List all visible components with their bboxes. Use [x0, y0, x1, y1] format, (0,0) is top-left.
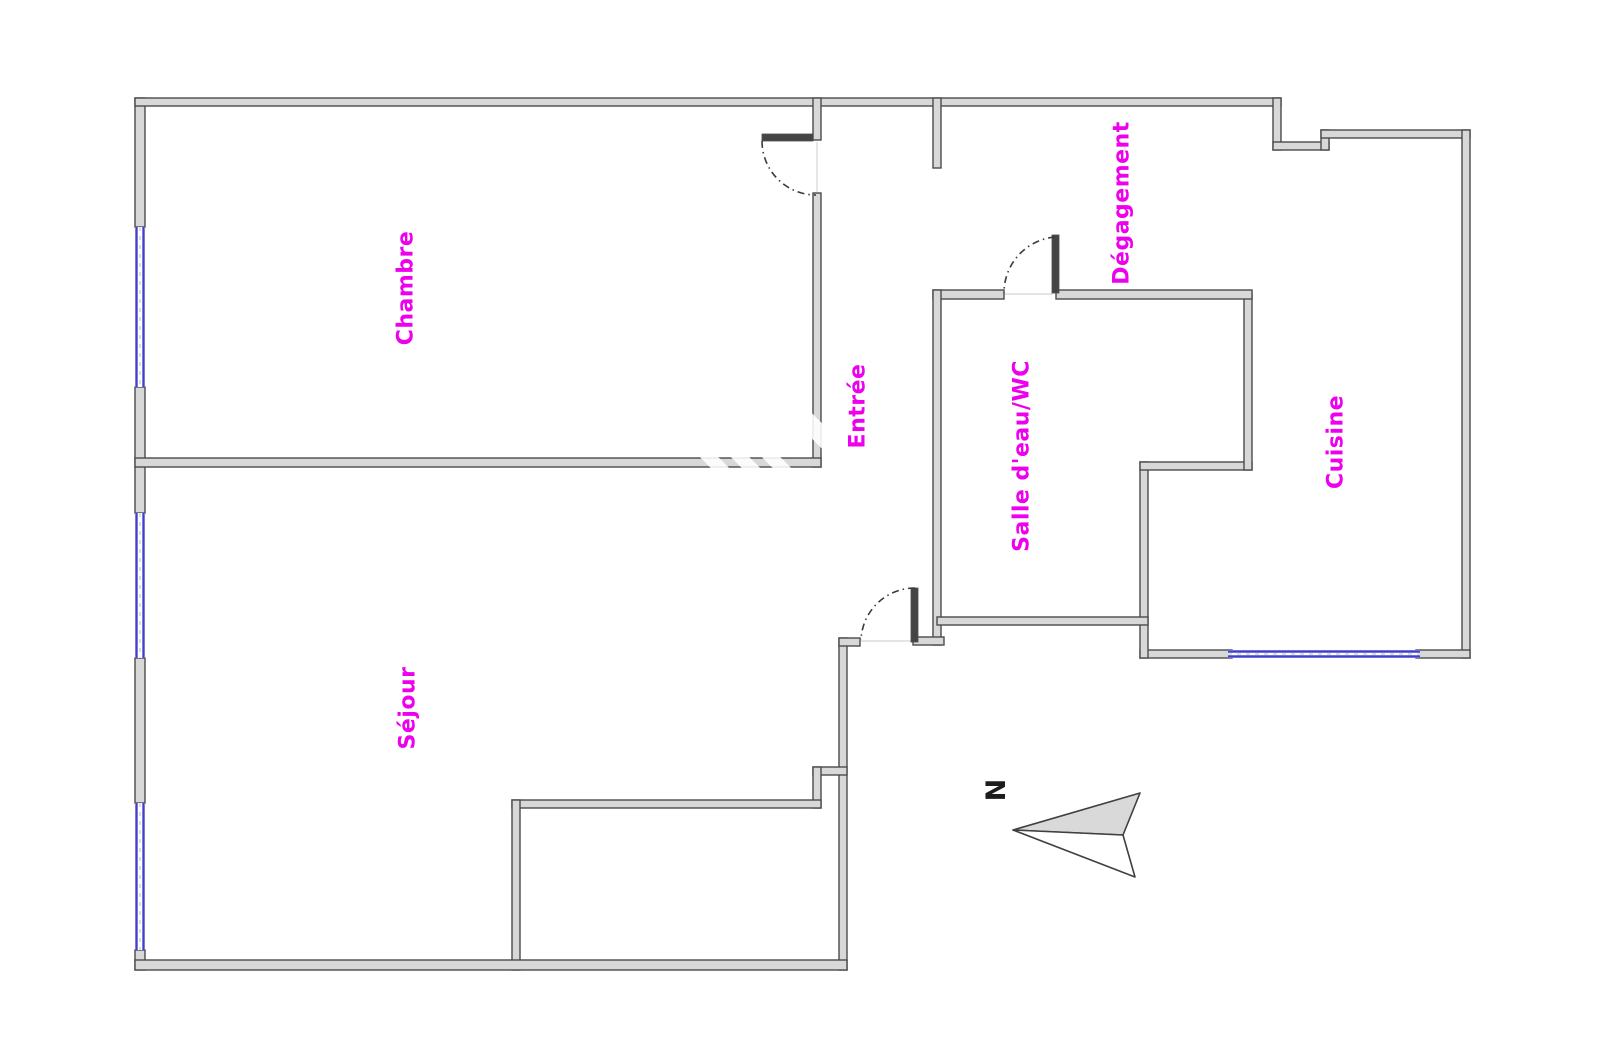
wall-segment [1244, 293, 1252, 470]
floor-plan-drawing [0, 0, 1600, 1064]
wall-segment [937, 617, 1148, 625]
wall-segment [839, 638, 847, 970]
wall-segment [1140, 462, 1148, 658]
wall-segment [1416, 650, 1470, 658]
floor-plan-page: Chambre Entrée Dégagement Salle d'eau/WC… [0, 0, 1600, 1064]
north-arrow-lower [1013, 830, 1135, 877]
room-label-cuisine: Cuisine [1324, 395, 1349, 489]
wall-segment [839, 638, 860, 646]
room-label-sejour: Séjour [396, 667, 421, 750]
wall-segment [813, 98, 821, 140]
north-letter: N [979, 779, 1010, 802]
room-label-entree: Entrée [846, 364, 871, 449]
door-swing-arc [1004, 237, 1055, 293]
door-swing-arc [762, 141, 816, 195]
wall-segment [512, 800, 520, 970]
wall-segment [933, 290, 941, 645]
wall-segment [1462, 130, 1470, 658]
wall-segment [933, 290, 1004, 299]
wall-segment [1056, 290, 1252, 299]
wall-segment [512, 800, 821, 808]
door-swing-arc [861, 588, 915, 640]
wall-segment [1321, 130, 1470, 138]
room-label-chambre: Chambre [394, 231, 419, 346]
door-leaf [911, 588, 918, 642]
room-label-salle-deau-wc: Salle d'eau/WC [1010, 360, 1035, 552]
wall-segment [135, 658, 145, 803]
wall-segment [1140, 650, 1232, 658]
wall-segment [135, 98, 1281, 106]
door-leaf [762, 134, 813, 141]
wall-segment [135, 960, 847, 970]
wall-segment [135, 387, 145, 513]
wall-segment [933, 98, 941, 168]
wall-segment [1140, 462, 1252, 470]
wall-segment [135, 98, 145, 227]
door-leaf [1052, 235, 1059, 293]
north-arrow-upper [1013, 793, 1140, 835]
room-label-degagement: Dégagement [1110, 121, 1135, 284]
